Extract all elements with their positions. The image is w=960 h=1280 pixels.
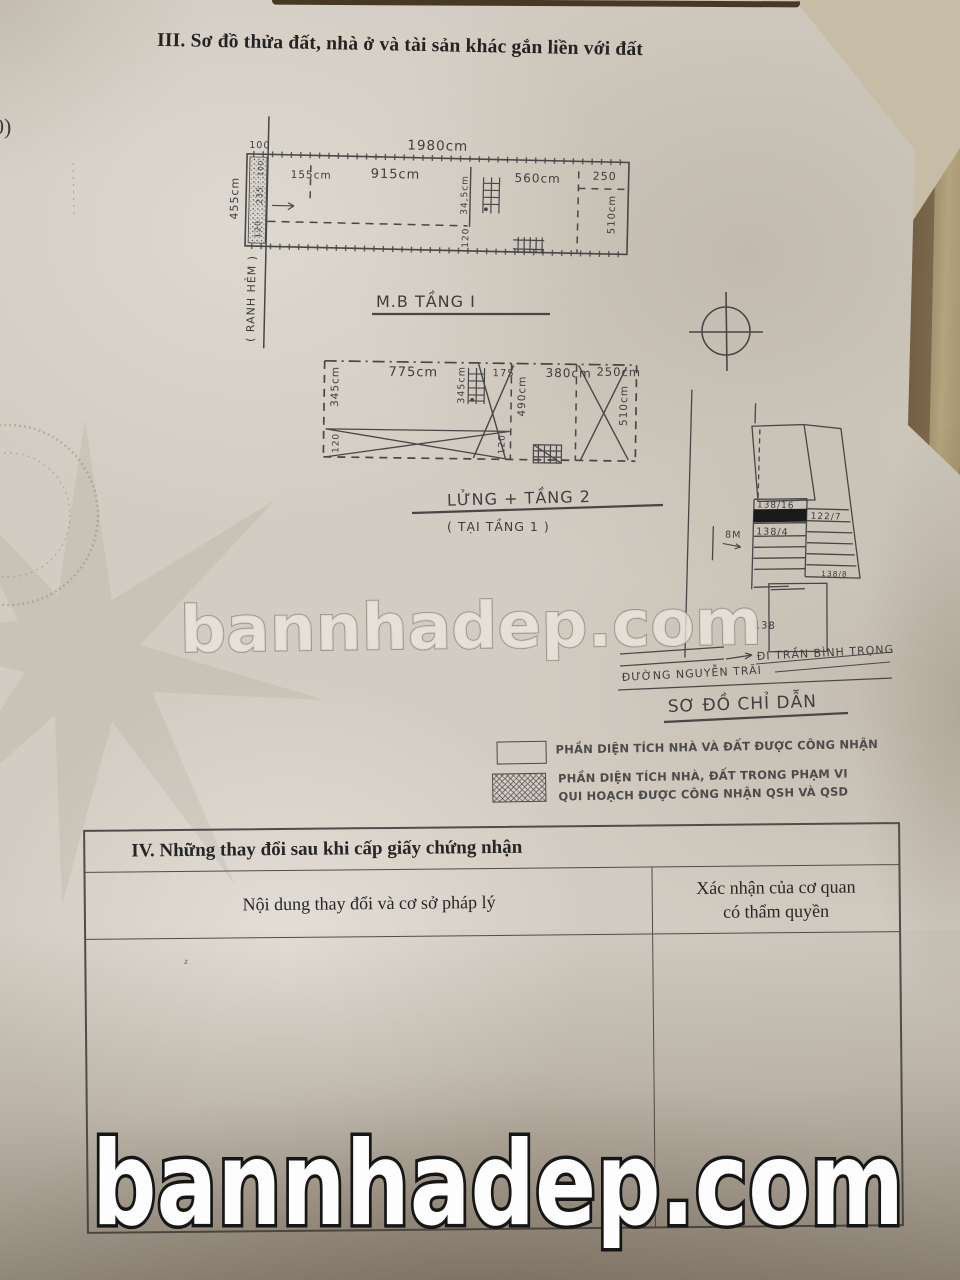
bottom-watermark: bannhadep.com	[92, 1117, 904, 1252]
document-photo: III. Sơ đồ thửa đất, nhà ở và tài sản kh…	[0, 0, 960, 1280]
bottom-watermark-layer: bannhadep.com	[0, 0, 960, 1280]
